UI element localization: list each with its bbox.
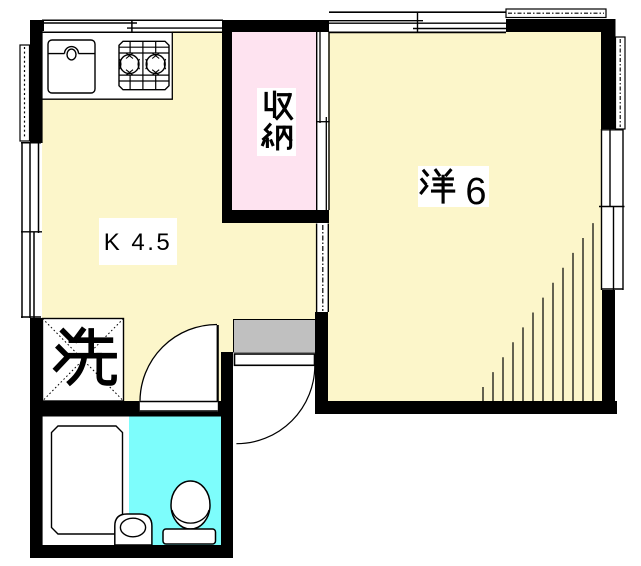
svg-text:6: 6 (465, 171, 486, 213)
svg-text:K 4.5: K 4.5 (104, 229, 173, 256)
